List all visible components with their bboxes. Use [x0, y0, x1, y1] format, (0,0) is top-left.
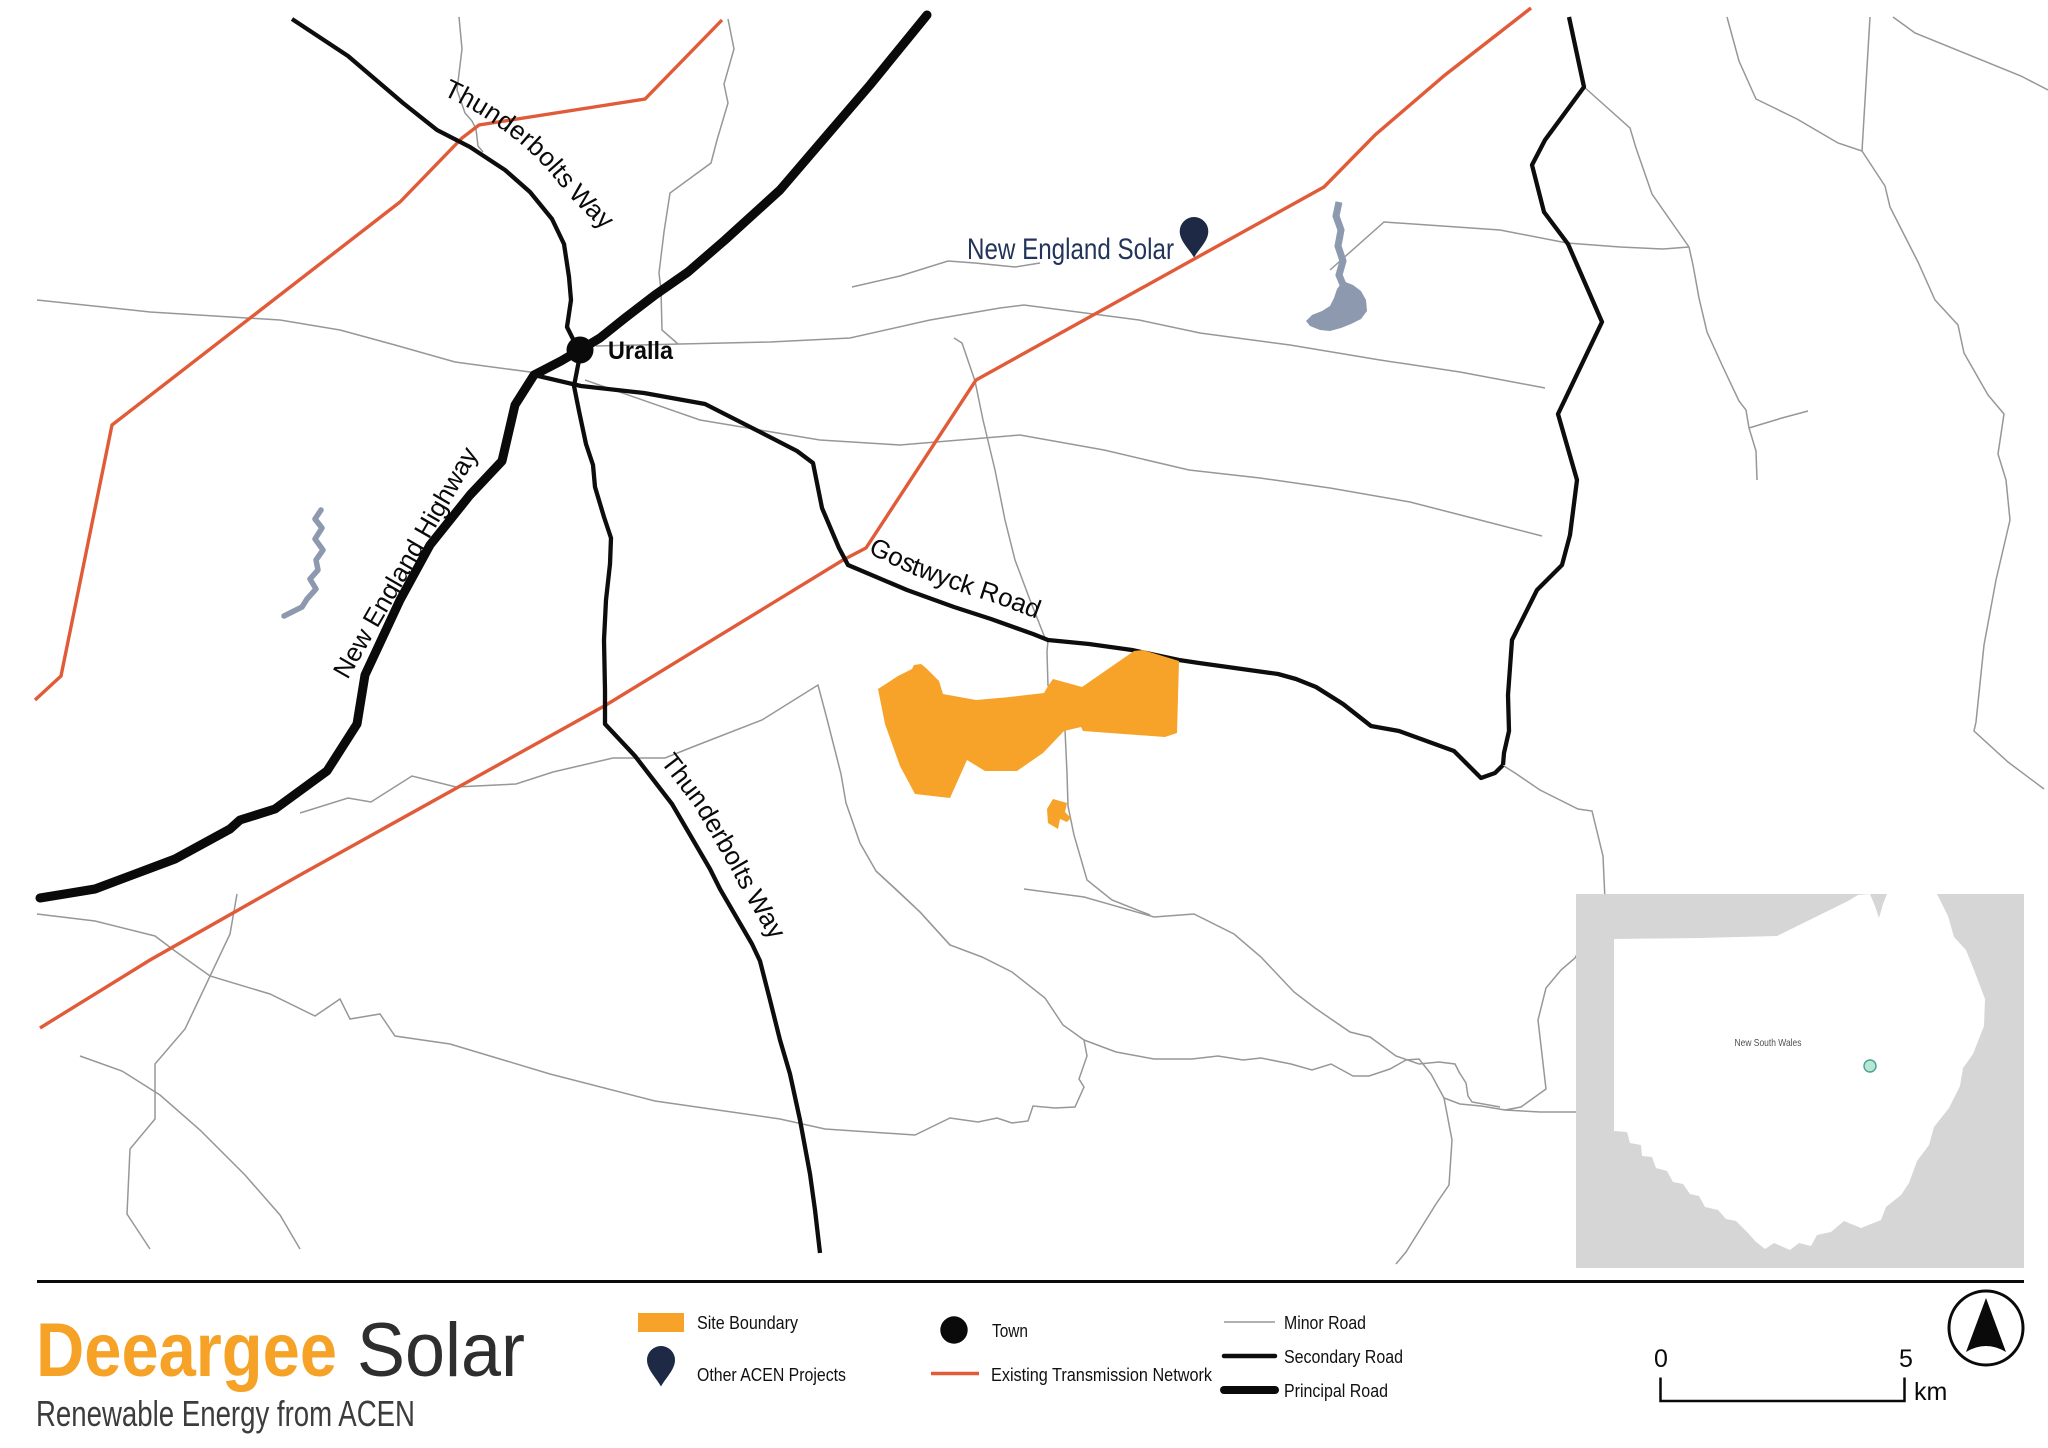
svg-text:Secondary Road: Secondary Road — [1284, 1346, 1403, 1367]
svg-text:Other ACEN Projects: Other ACEN Projects — [697, 1364, 846, 1385]
svg-text:Town: Town — [992, 1320, 1028, 1341]
svg-text:Site Boundary: Site Boundary — [697, 1312, 799, 1333]
svg-text:Minor Road: Minor Road — [1284, 1312, 1366, 1333]
svg-text:Deeargee: Deeargee — [36, 1308, 337, 1393]
svg-text:Solar: Solar — [357, 1308, 525, 1393]
svg-text:Principal Road: Principal Road — [1284, 1380, 1388, 1401]
svg-text:New South Wales: New South Wales — [1735, 1037, 1802, 1049]
svg-text:New England Solar: New England Solar — [967, 233, 1174, 266]
svg-text:km: km — [1914, 1378, 1947, 1406]
svg-text:Renewable Energy from ACEN: Renewable Energy from ACEN — [36, 1393, 415, 1434]
svg-text:Existing Transmission Network: Existing Transmission Network — [991, 1364, 1213, 1385]
svg-text:Uralla: Uralla — [608, 337, 674, 365]
svg-text:0: 0 — [1654, 1345, 1668, 1373]
svg-text:5: 5 — [1899, 1345, 1913, 1373]
